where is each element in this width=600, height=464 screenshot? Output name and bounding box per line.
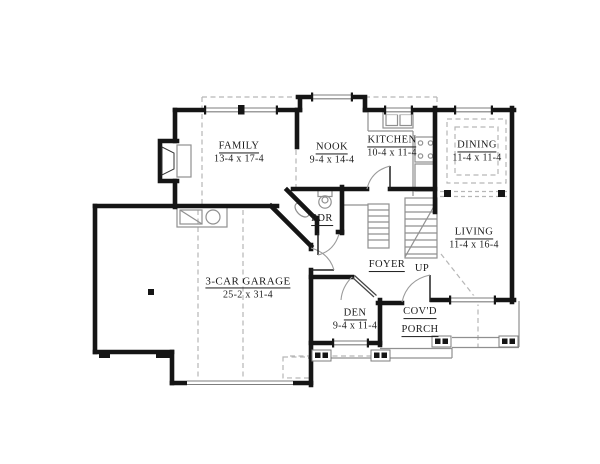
kitchen-window — [384, 106, 413, 115]
room-name: FOYER — [369, 259, 405, 272]
fireplace-hearth — [177, 145, 191, 177]
dining-window — [454, 106, 493, 115]
stairs-direction: UP — [415, 263, 429, 275]
room-name: LIVING — [455, 226, 494, 239]
room-name: 3-CAR GARAGE — [205, 275, 290, 288]
laundry-appliances-icon — [177, 207, 227, 227]
hall-door — [367, 166, 390, 189]
room-label-kitchen: KITCHEN 10-4 x 11-4 — [367, 129, 417, 158]
nook-window — [311, 93, 353, 102]
room-name: KITCHEN — [368, 134, 417, 147]
room-dims: 11-4 x 11-4 — [452, 152, 501, 163]
garage-entry-door — [311, 248, 334, 270]
room-label-porch: COV'D PORCH — [401, 301, 438, 337]
room-name: FAMILY — [219, 140, 260, 153]
column-post — [444, 190, 451, 197]
porch-column — [312, 350, 331, 361]
garage-door — [187, 379, 293, 387]
room-name: DINING — [457, 139, 497, 152]
porch-column — [371, 350, 390, 361]
family-window — [204, 105, 278, 115]
room-label-nook: NOOK 9-4 x 14-4 — [310, 136, 355, 165]
room-name: DEN — [344, 307, 367, 320]
room-name: PDR — [311, 213, 333, 226]
room-label-foyer: FOYER — [369, 254, 405, 272]
room-dims: 25-2 x 31-4 — [205, 289, 290, 300]
column-post — [498, 190, 505, 197]
room-dims: 13-4 x 17-4 — [214, 153, 264, 164]
room-label-den: DEN 9-4 x 11-4 — [333, 302, 377, 331]
porch-column — [499, 336, 518, 347]
den-window — [332, 339, 369, 348]
room-dims: 10-4 x 11-4 — [367, 147, 417, 158]
room-label-pdr: PDR — [311, 208, 333, 226]
porch-column — [432, 336, 451, 347]
room-label-dining: DINING 11-4 x 11-4 — [452, 134, 501, 163]
floor-plan-drawing — [0, 0, 600, 464]
room-label-living: LIVING 11-4 x 16-4 — [449, 221, 499, 250]
floor-plan-page: FAMILY 13-4 x 17-4 NOOK 9-4 x 14-4 KITCH… — [0, 0, 600, 464]
living-window — [449, 296, 496, 305]
room-dims: 9-4 x 11-4 — [333, 320, 377, 331]
room-name: NOOK — [316, 141, 348, 154]
powder-room-door — [318, 233, 339, 255]
front-door — [402, 275, 430, 302]
toilet-icon — [318, 191, 332, 209]
room-name-line1: COV'D — [403, 306, 437, 319]
room-name-line2: PORCH — [401, 324, 438, 337]
garage-post — [148, 289, 154, 295]
fireplace-firebox — [162, 147, 174, 175]
room-label-family: FAMILY 13-4 x 17-4 — [214, 135, 264, 164]
room-dims: 9-4 x 14-4 — [310, 154, 355, 165]
pantry-shelves — [368, 204, 389, 248]
stairs — [405, 198, 437, 258]
room-dims: 11-4 x 16-4 — [449, 239, 499, 250]
room-label-garage: 3-CAR GARAGE 25-2 x 31-4 — [205, 271, 290, 300]
stairs-up-label: UP — [415, 258, 429, 276]
